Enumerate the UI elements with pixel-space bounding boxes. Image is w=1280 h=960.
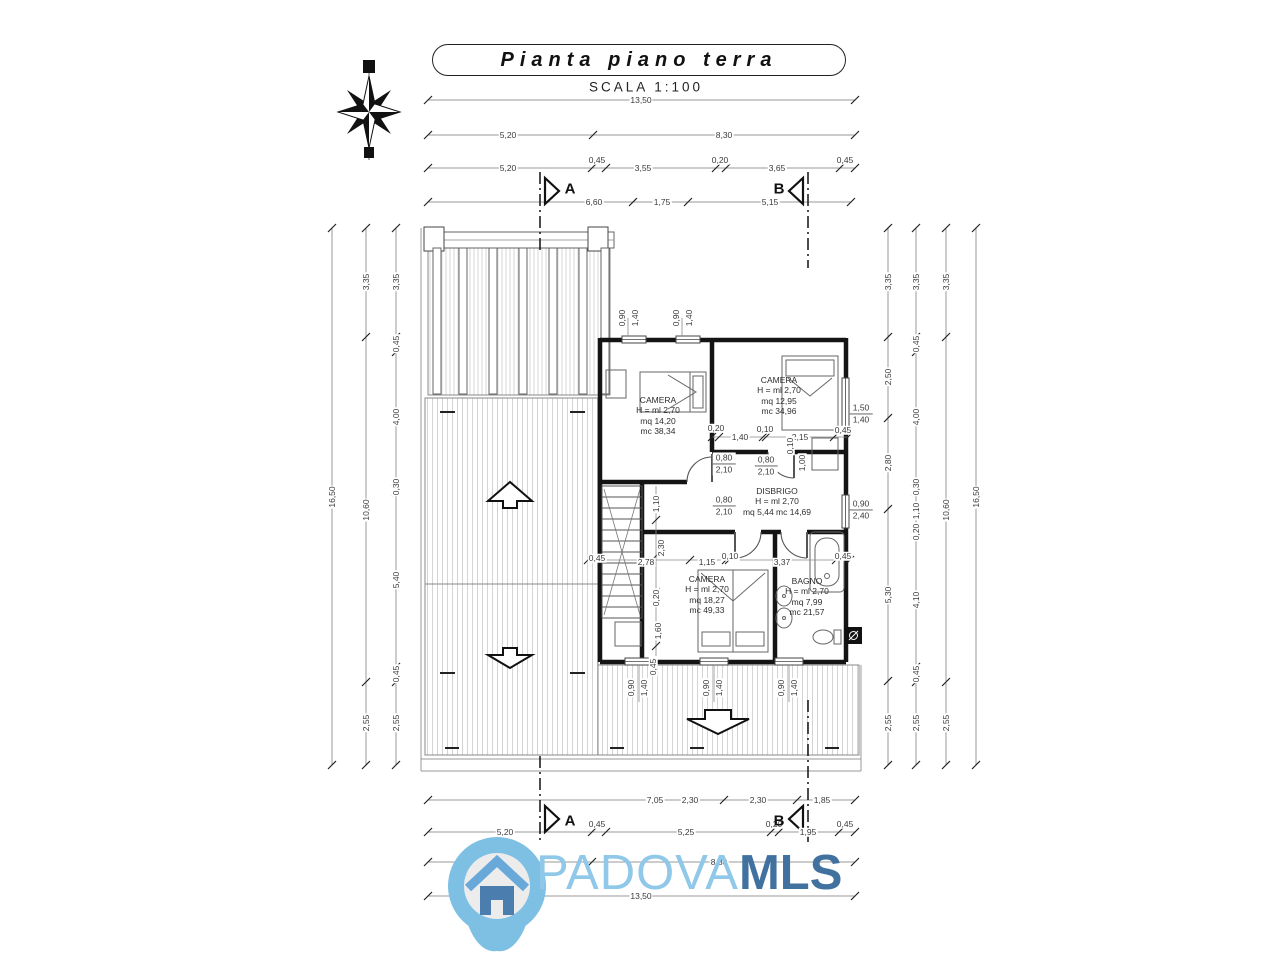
watermark-pin-icon xyxy=(0,0,1280,960)
watermark-logo: PADOVAMLS xyxy=(536,845,842,901)
watermark-text-bold: MLS xyxy=(739,845,842,901)
floorplan-drawing: Pianta piano terra SCALA 1:100 A B A B 1… xyxy=(0,0,1280,960)
watermark-text-light: PADOVA xyxy=(536,845,739,901)
